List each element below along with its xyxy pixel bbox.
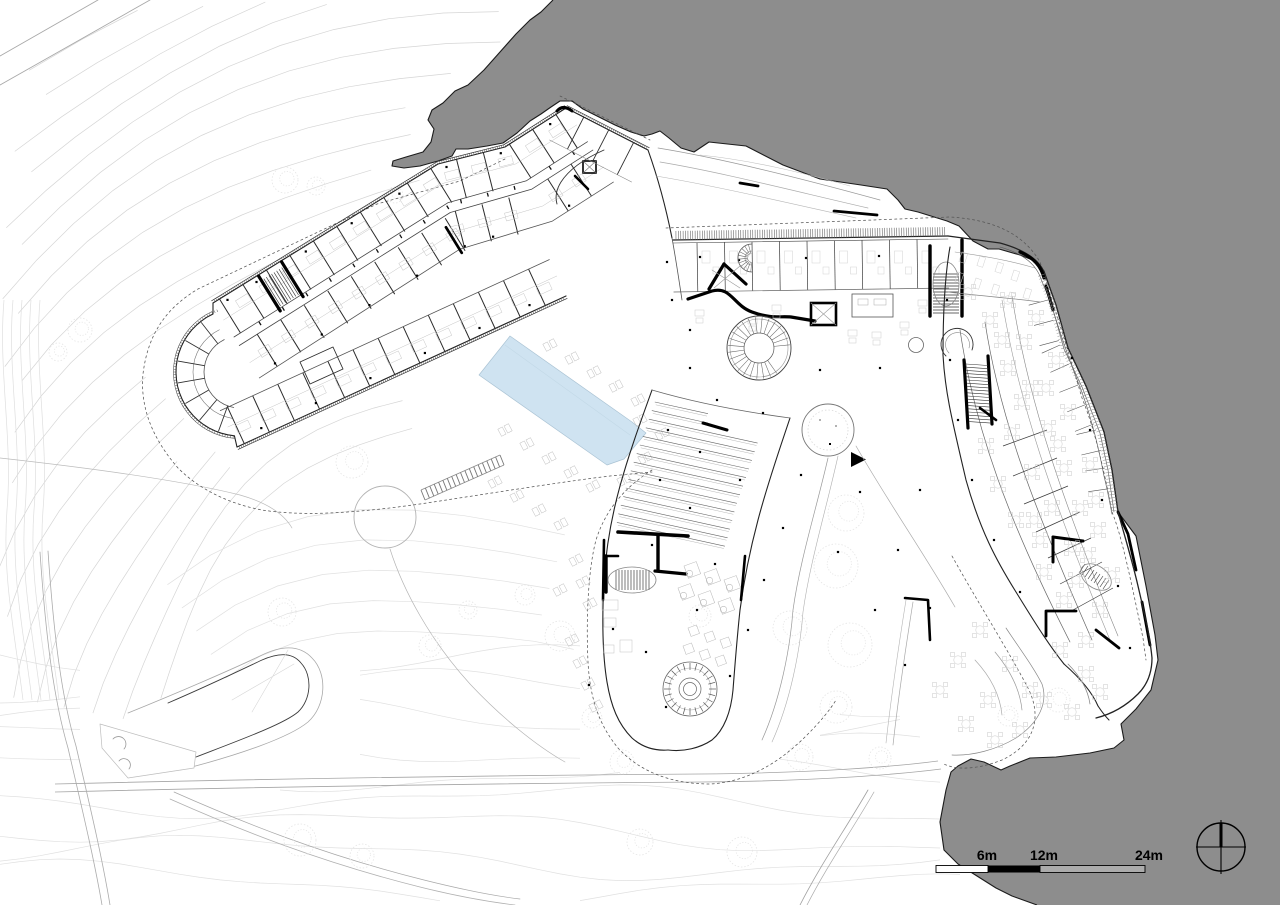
svg-text:12m: 12m <box>1030 847 1058 863</box>
svg-text:24m: 24m <box>1135 847 1163 863</box>
svg-text:6m: 6m <box>977 847 997 863</box>
